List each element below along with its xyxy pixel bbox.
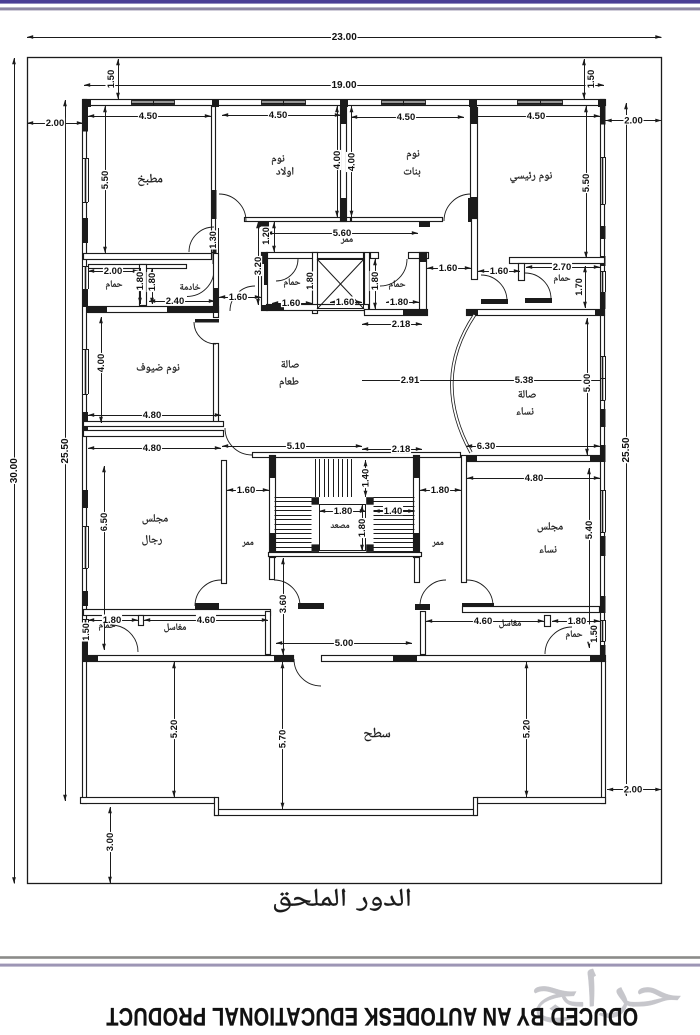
svg-text:1.60: 1.60: [237, 485, 256, 496]
svg-text:2.91: 2.91: [401, 375, 420, 386]
svg-text:4.50: 4.50: [269, 110, 288, 121]
svg-text:1.80: 1.80: [370, 272, 381, 291]
svg-text:1.60: 1.60: [439, 263, 458, 274]
svg-text:1.80: 1.80: [568, 616, 587, 627]
svg-text:19.00: 19.00: [331, 80, 356, 91]
svg-text:5.60: 5.60: [333, 228, 352, 239]
svg-text:1.30: 1.30: [208, 231, 218, 249]
svg-text:1.40: 1.40: [361, 469, 372, 488]
svg-text:2.18: 2.18: [392, 444, 411, 455]
svg-text:4.80: 4.80: [143, 410, 162, 421]
svg-text:25.50: 25.50: [621, 437, 632, 462]
svg-text:4.60: 4.60: [474, 616, 493, 627]
svg-text:1.60: 1.60: [336, 297, 355, 308]
svg-text:4.80: 4.80: [143, 443, 162, 454]
svg-text:2.70: 2.70: [553, 262, 572, 273]
svg-text:5.10: 5.10: [287, 441, 306, 452]
svg-text:5.40: 5.40: [584, 521, 595, 540]
svg-text:4.50: 4.50: [139, 111, 158, 122]
svg-text:1.40: 1.40: [384, 506, 403, 517]
svg-text:1.70: 1.70: [574, 278, 584, 296]
svg-text:4.50: 4.50: [397, 112, 416, 123]
svg-text:5.00: 5.00: [582, 374, 593, 393]
svg-text:5.20: 5.20: [169, 720, 180, 739]
svg-text:2.18: 2.18: [392, 319, 411, 330]
svg-text:1.80: 1.80: [431, 485, 450, 496]
svg-text:30.00: 30.00: [9, 458, 20, 483]
svg-text:4.60: 4.60: [197, 615, 216, 626]
svg-text:5.38: 5.38: [515, 375, 534, 386]
svg-text:3.60: 3.60: [278, 595, 289, 614]
svg-text:1.50: 1.50: [81, 623, 91, 641]
svg-text:ODUCED BY AN AUTODESK EDUCATIO: ODUCED BY AN AUTODESK EDUCATIONAL PRODUC…: [106, 1002, 638, 1030]
svg-text:6.30: 6.30: [477, 441, 496, 452]
svg-text:4.00: 4.00: [332, 151, 343, 170]
svg-text:1.80: 1.80: [103, 615, 122, 626]
svg-text:1.80: 1.80: [334, 506, 353, 517]
svg-text:2.40: 2.40: [166, 296, 185, 307]
svg-text:1.60: 1.60: [282, 298, 301, 309]
svg-text:2.00: 2.00: [624, 116, 643, 127]
svg-text:1.80: 1.80: [135, 272, 146, 291]
svg-text:5.50: 5.50: [100, 171, 111, 190]
svg-text:4.00: 4.00: [96, 354, 107, 373]
svg-text:5.50: 5.50: [581, 174, 592, 193]
svg-text:5.70: 5.70: [278, 730, 289, 749]
svg-text:1.50: 1.50: [106, 70, 117, 89]
svg-text:4.50: 4.50: [527, 111, 546, 122]
svg-text:1.60: 1.60: [229, 292, 248, 303]
svg-text:2.00: 2.00: [624, 785, 643, 796]
svg-text:4.80: 4.80: [525, 473, 544, 484]
svg-text:5.20: 5.20: [522, 720, 533, 739]
svg-text:3.20: 3.20: [253, 257, 264, 276]
svg-text:1.60: 1.60: [490, 266, 509, 277]
svg-text:23.00: 23.00: [332, 32, 357, 43]
svg-text:1.50: 1.50: [589, 625, 599, 643]
svg-text:1.50: 1.50: [586, 70, 597, 89]
svg-text:2.00: 2.00: [46, 118, 65, 129]
svg-text:1.80: 1.80: [390, 297, 409, 308]
svg-text:1.80: 1.80: [305, 272, 315, 290]
svg-text:1.20: 1.20: [261, 227, 271, 245]
svg-text:25.50: 25.50: [60, 438, 71, 463]
svg-text:5.00: 5.00: [335, 638, 354, 649]
svg-text:4.00: 4.00: [347, 153, 358, 172]
svg-text:6.50: 6.50: [99, 513, 110, 532]
svg-text:3.00: 3.00: [105, 833, 116, 852]
svg-text:1.80: 1.80: [147, 273, 158, 292]
svg-text:2.00: 2.00: [104, 266, 123, 277]
svg-text:1.80: 1.80: [357, 519, 368, 538]
